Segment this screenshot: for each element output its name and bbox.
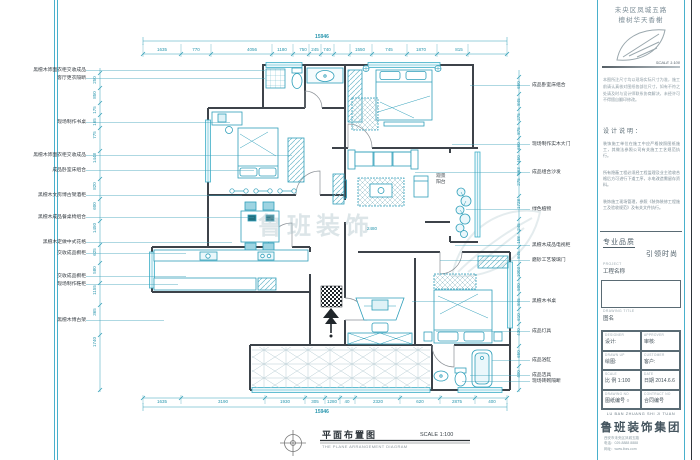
left-dimension-value: 775 bbox=[92, 124, 98, 146]
bottom-dimension-value: 1635 bbox=[150, 399, 174, 405]
left-callout-label: 黑檀木成品餐桌椅组合 bbox=[38, 215, 86, 221]
left-dimension-value: 820 bbox=[92, 175, 98, 197]
top-total-dimension: 15946 bbox=[302, 34, 342, 40]
field-approver: APPROVER审核: bbox=[641, 331, 680, 351]
left-callout-label: 黑檀木饰面衣柜交收成品 bbox=[33, 153, 86, 159]
field-designer: DESIGNER设计: bbox=[602, 331, 641, 351]
bottom-dimension-value: 2320 bbox=[366, 399, 390, 405]
left-dimension-value: 1448 bbox=[92, 147, 98, 169]
field-contract-no: CONTRACT NO合同编号 bbox=[641, 390, 680, 410]
company-contact: 西安市未央区凤城五路 电话：029-8888 8888 网址：www.lbzs.… bbox=[604, 436, 681, 452]
field-date: DATE日期 2014.6.6 bbox=[641, 370, 680, 390]
design-note: 装饰施工现场管理，参照《装饰装修工程施工及验收规范》及有关文件执行。 bbox=[603, 199, 680, 211]
right-dimension-value: 1728 bbox=[516, 193, 522, 215]
bottom-dimension-value: 620 bbox=[408, 399, 432, 405]
project-label-en: PROJECT bbox=[603, 262, 622, 266]
right-callout-label: 现场砖砌隔断 bbox=[532, 379, 561, 385]
right-dimension-value: 650 bbox=[516, 343, 522, 365]
right-callout-label: 黑檀木成品电视柜 bbox=[532, 243, 570, 249]
top-dimension-value: 770 bbox=[184, 47, 208, 53]
right-callout-label: 成品灯具 bbox=[532, 329, 551, 335]
brand-slogan-top: 专业品质 bbox=[603, 237, 635, 248]
drawing-scale: SCALE 1:100 bbox=[420, 432, 453, 438]
top-dimension-value: 740 bbox=[315, 47, 339, 53]
right-callout-label: 黑檀木书桌 bbox=[532, 299, 556, 305]
right-dimension-value: 275 bbox=[516, 171, 522, 193]
right-dimension-value: 400 bbox=[516, 363, 522, 385]
field-scale: SCALE比 例 1:100 bbox=[602, 370, 641, 390]
right-callout-label: 现场制作实木大门 bbox=[532, 142, 570, 148]
design-note: 所有隐蔽工程必须经工程监理及业主验收合格后方可进行下道工序，水电改造需留存资料。 bbox=[603, 170, 680, 189]
text-overlay: 鲁班装饰 15946 15946 2480 观景阳台 平面布置图 SCALE 1… bbox=[0, 0, 700, 460]
left-dimension-value: 580 bbox=[92, 259, 98, 281]
project-label-cn: 工程名称 bbox=[603, 267, 625, 275]
left-callout-label: 成品卧室床组合 bbox=[52, 168, 86, 174]
drawing-title: 平面布置图 bbox=[322, 428, 377, 441]
bottom-dimension-value: 1930 bbox=[273, 399, 297, 405]
right-callout-label: 绿色植物 bbox=[532, 207, 551, 213]
bottom-total-dimension: 15946 bbox=[302, 409, 342, 415]
company-name-en: LU BAN ZHUANG SHI JI TUAN bbox=[598, 412, 684, 416]
top-dimension-value: 1550 bbox=[348, 47, 372, 53]
floor-plan-sheet: 鲁班装饰 15946 15946 2480 观景阳台 平面布置图 SCALE 1… bbox=[0, 0, 700, 460]
left-dimension-value: 1450 bbox=[92, 217, 98, 239]
titleblock-scale: SCALE 1:100 bbox=[656, 60, 680, 65]
room-label-balcony: 观景阳台 bbox=[436, 174, 448, 185]
watermark-text: 鲁班装饰 bbox=[258, 206, 374, 241]
left-callout-label: 现场制作鞋柜 bbox=[57, 282, 86, 288]
left-callout-label: 交收成品橱柜 bbox=[57, 274, 86, 280]
titleblock-intro: 本图所注尺寸均以现场实际尺寸为准，施工前请认真核对图纸各部位尺寸，如有不符之处请… bbox=[603, 77, 680, 104]
left-callout-label: 黑檀木文房博古架酒柜 bbox=[38, 193, 86, 199]
left-dimension-value: 365 bbox=[92, 301, 98, 323]
right-callout-label: 磨砂工艺玻璃门 bbox=[532, 258, 566, 264]
right-dimension-value: 430 bbox=[516, 321, 522, 343]
top-dimension-value: 1870 bbox=[409, 47, 433, 53]
top-dimension-value: 815 bbox=[447, 47, 471, 53]
right-callout-label: 成品卧室床组合 bbox=[532, 83, 566, 89]
bottom-dimension-value: 2875 bbox=[445, 399, 469, 405]
right-callout-label: 成品浴缸 bbox=[532, 358, 551, 364]
title-block: 未央区凤城五路 檀树华天香榭 SCALE 1:100 本图所注尺寸均以现场实际尺… bbox=[597, 0, 685, 460]
drawing-title-label-cn: 图名 bbox=[603, 314, 614, 322]
titleblock-form-grid: DESIGNER设计: APPROVER审核: DRAWN UP绘图: CUST… bbox=[601, 330, 681, 410]
design-note: 装饰施工单位在施工中应严格按照图纸施工，其做法参照公司有关施工工艺规范执行。 bbox=[603, 141, 680, 160]
left-callout-label: 黑檀木饰面衣柜交收成品 bbox=[33, 68, 86, 74]
company-name-cn: 鲁班装饰集团 bbox=[598, 419, 684, 435]
top-dimension-value: 4056 bbox=[240, 47, 264, 53]
brand-slogan-bottom: 引领时尚 bbox=[646, 249, 678, 259]
left-callout-label: 现场制作书桌 bbox=[57, 120, 86, 126]
company-leaf-logo bbox=[613, 24, 669, 64]
project-address-line1: 未央区凤城五路 bbox=[598, 4, 684, 14]
field-drawing-no: DRAWING NO图纸编号 ○ bbox=[602, 390, 641, 410]
left-dimension-value: 1155 bbox=[92, 279, 98, 301]
top-dimension-value: 1635 bbox=[150, 47, 174, 53]
divider bbox=[600, 231, 682, 232]
project-address-line2: 檀树华天香榭 bbox=[598, 14, 684, 24]
drawing-caption: THE PLANE ARRANGEMENT DIAGRAM bbox=[322, 444, 408, 449]
scale-rule bbox=[602, 66, 680, 68]
bottom-dimension-value: 3190 bbox=[211, 399, 235, 405]
top-dimension-value: 745 bbox=[377, 47, 401, 53]
left-callout-label: 黑檀木定做中式花格 bbox=[43, 240, 86, 246]
design-notes-title: 设计说明： bbox=[603, 126, 643, 135]
field-customer: CUSTOMER客户: bbox=[641, 351, 680, 371]
left-callout-label: 客厅更衣隔断 bbox=[57, 76, 86, 82]
left-dimension-value: 1740 bbox=[92, 331, 98, 353]
right-callout-label: 成品洁具 bbox=[532, 373, 551, 379]
field-drawn-up: DRAWN UP绘图: bbox=[602, 351, 641, 371]
left-dimension-value: 600 bbox=[92, 195, 98, 217]
left-callout-label: 黑檀木博古架 bbox=[57, 318, 86, 324]
project-name-box bbox=[601, 280, 681, 308]
drawing-title-label-en: DRAWING TITLE bbox=[603, 309, 635, 313]
right-callout-label: 成品组合沙发 bbox=[532, 170, 561, 176]
bottom-dimension-value: 40 bbox=[335, 399, 359, 405]
inner-dimension: 2480 bbox=[360, 226, 384, 232]
bottom-dimension-value: 400 bbox=[480, 399, 504, 405]
left-callout-label: 交收成品橱柜 bbox=[57, 251, 86, 257]
